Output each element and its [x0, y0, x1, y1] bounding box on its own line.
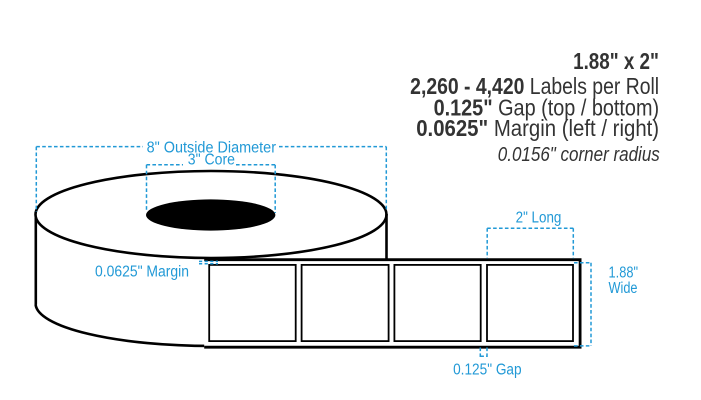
svg-text:0.0156" corner radius: 0.0156" corner radius	[498, 143, 661, 166]
svg-text:0.125" Gap: 0.125" Gap	[453, 362, 521, 379]
svg-text:1.88": 1.88"	[609, 264, 639, 281]
svg-text:0.0625" Margin: 0.0625" Margin	[95, 263, 189, 280]
svg-text:0.0625" Margin (left / right): 0.0625" Margin (left / right)	[416, 115, 659, 141]
svg-text:Wide: Wide	[609, 280, 638, 297]
svg-text:2" Long: 2" Long	[516, 209, 562, 226]
svg-text:1.88" x 2": 1.88" x 2"	[573, 49, 659, 74]
svg-text:3" Core: 3" Core	[188, 152, 235, 169]
